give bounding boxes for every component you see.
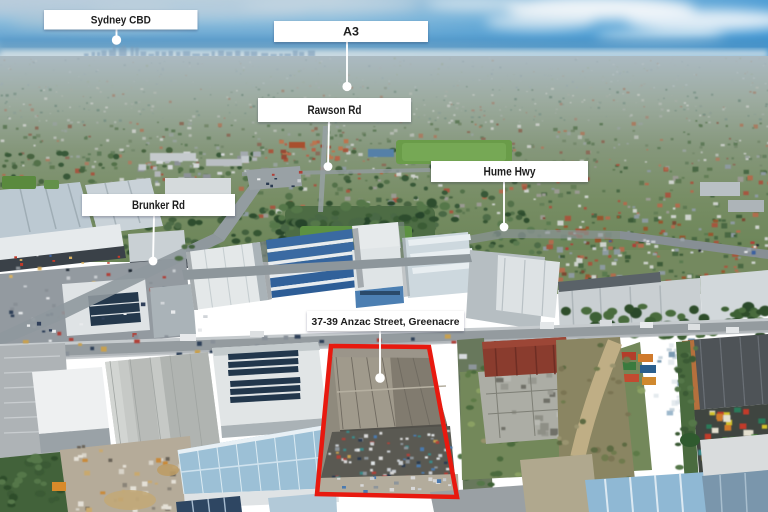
svg-text:Hume Hwy: Hume Hwy [484, 167, 537, 179]
svg-text:Rawson Rd: Rawson Rd [308, 105, 362, 117]
svg-text:A3: A3 [343, 27, 359, 39]
svg-text:37-39 Anzac Street, Greenacre: 37-39 Anzac Street, Greenacre [312, 316, 460, 328]
svg-text:Sydney CBD: Sydney CBD [91, 15, 151, 27]
svg-text:Brunker Rd: Brunker Rd [132, 200, 185, 212]
